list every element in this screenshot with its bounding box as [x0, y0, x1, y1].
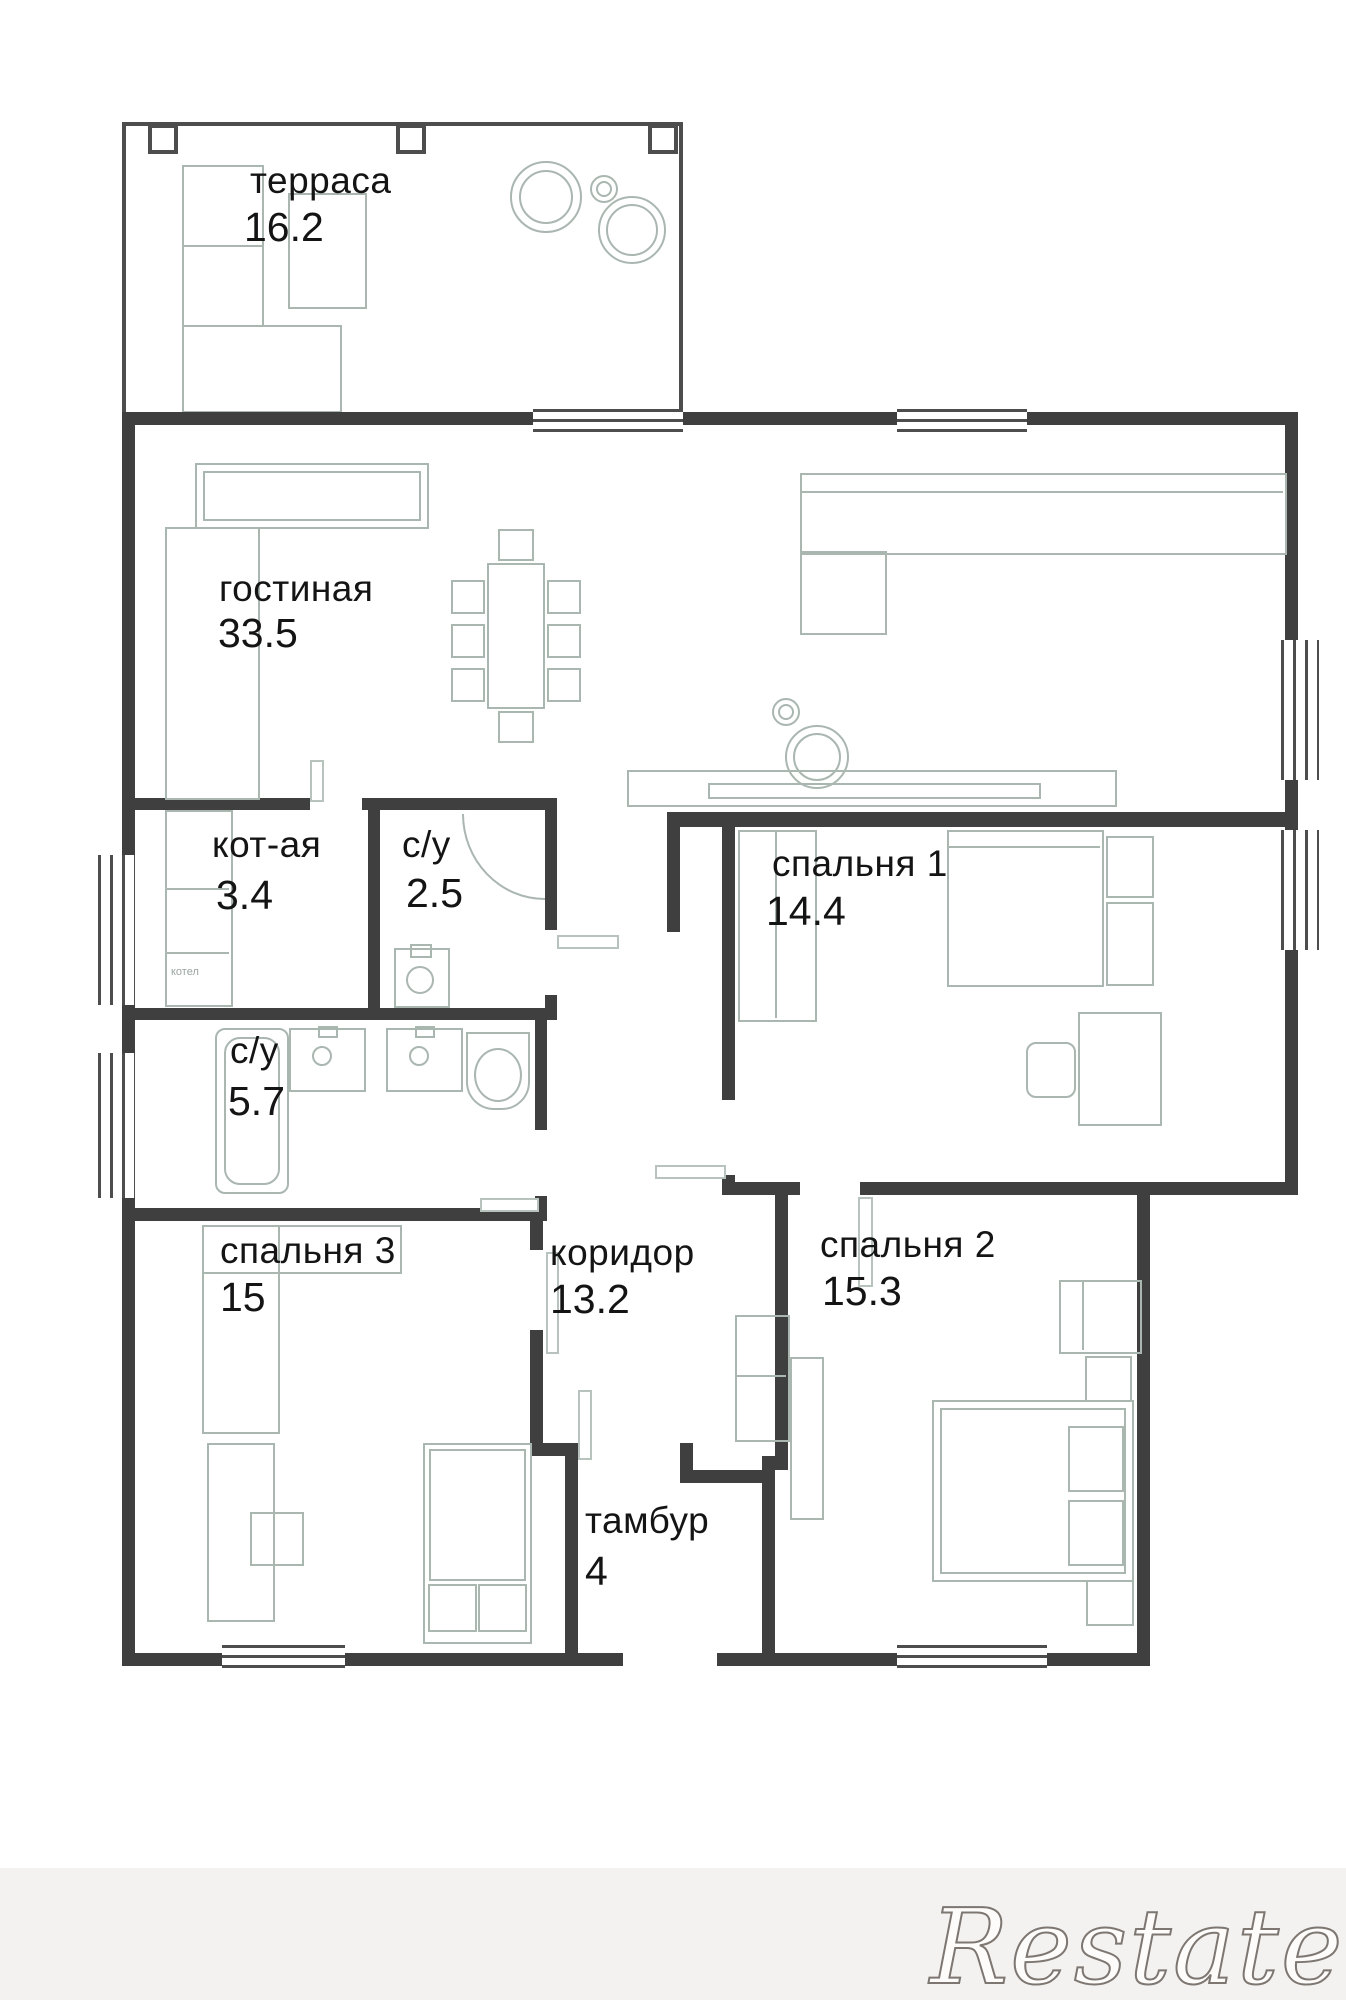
wall: [762, 1456, 788, 1470]
bed: [947, 830, 1104, 987]
pillow: [478, 1584, 527, 1632]
faucet-icon: [318, 1026, 338, 1038]
door-leaf: [578, 1390, 592, 1460]
wall: [122, 412, 1298, 425]
room-area-bedroom2: 15.3: [822, 1268, 902, 1315]
wardrobe: [1059, 1280, 1142, 1354]
plant-pot-icon: [778, 704, 794, 720]
room-label-vestibule: тамбур: [585, 1500, 709, 1542]
wall: [545, 798, 557, 930]
wall: [722, 812, 735, 1100]
dining-chair: [498, 711, 534, 743]
room-area-bedroom1: 14.4: [766, 888, 846, 935]
wardrobe: [1082, 1280, 1084, 1350]
terrace-furniture: [182, 325, 342, 413]
side-table: [250, 1512, 304, 1566]
dining-chair: [451, 668, 485, 702]
window: [897, 409, 1027, 439]
dresser: [790, 1357, 824, 1520]
dining-chair: [451, 580, 485, 614]
plant-pot-icon: [596, 181, 612, 197]
dining-chair: [451, 624, 485, 658]
terrace-post: [148, 124, 178, 154]
room-label-bedroom3: спальня 3: [220, 1230, 396, 1272]
wall: [122, 122, 126, 412]
room-label-bedroom1: спальня 1: [772, 843, 948, 885]
room-label-bedroom2: спальня 2: [820, 1224, 996, 1266]
room-area-living: 33.5: [218, 610, 298, 657]
corner-sofa: [800, 473, 1287, 555]
door-leaf: [480, 1198, 539, 1212]
terrace-post: [648, 124, 678, 154]
dining-chair: [547, 624, 581, 658]
wall: [680, 1443, 693, 1483]
terrace-furniture: [182, 245, 264, 327]
wall: [762, 1470, 775, 1666]
plant-pot-icon: [519, 170, 573, 224]
wall: [135, 1008, 547, 1020]
wall: [667, 812, 1298, 827]
room-area-wc-small: 2.5: [406, 870, 463, 917]
dining-chair: [547, 580, 581, 614]
room-label-wc-small: с/у: [402, 824, 451, 866]
boiler-unit-label: котел: [171, 966, 199, 978]
room-label-terrace: терраса: [250, 160, 391, 202]
kitchen-counter: [203, 471, 421, 521]
wall: [860, 1182, 1150, 1195]
wall: [578, 1653, 623, 1666]
watermark-logo: Restate: [930, 1886, 1344, 2000]
wall: [717, 1653, 762, 1666]
wall: [1137, 1182, 1150, 1666]
wall: [530, 1330, 543, 1456]
window: [1281, 830, 1319, 950]
room-label-wc-big: с/у: [230, 1030, 279, 1072]
room-area-vestibule: 4: [585, 1548, 608, 1595]
window: [1281, 640, 1319, 780]
room-label-boiler: кот-ая: [212, 824, 321, 866]
pillow: [428, 1584, 477, 1632]
boiler-shelf: [165, 952, 229, 954]
room-area-boiler: 3.4: [216, 872, 273, 919]
wall: [122, 1653, 578, 1666]
wall: [530, 1221, 543, 1250]
tv: [708, 783, 1041, 799]
nightstand: [1106, 902, 1154, 986]
corner-sofa: [800, 551, 887, 635]
room-area-wc-big: 5.7: [228, 1078, 285, 1125]
room-area-bedroom3: 15: [220, 1274, 266, 1321]
door-leaf: [557, 935, 619, 949]
wall: [122, 412, 135, 1666]
desk: [1078, 1012, 1162, 1126]
dining-chair: [498, 529, 534, 561]
wall: [368, 798, 380, 1020]
wall: [362, 798, 557, 810]
terrace-post: [396, 124, 426, 154]
wall: [679, 122, 683, 412]
window: [222, 1645, 345, 1675]
window: [533, 409, 683, 439]
window: [98, 1053, 135, 1198]
sink: [409, 1046, 429, 1066]
faucet-icon: [410, 944, 432, 958]
pillow: [1068, 1426, 1124, 1492]
room-label-living: гостиная: [219, 568, 373, 610]
room-area-terrace: 16.2: [244, 204, 324, 251]
dining-chair: [547, 668, 581, 702]
floor-plan: терраса 16.2: [0, 0, 1346, 2000]
shower: [462, 814, 545, 900]
pillow: [1068, 1500, 1124, 1566]
nightstand: [1106, 836, 1154, 898]
nightstand: [1085, 1356, 1132, 1402]
door-leaf: [310, 760, 324, 802]
room-area-hall: 13.2: [550, 1276, 630, 1323]
room-label-hall: коридор: [550, 1232, 695, 1274]
wall: [565, 1456, 578, 1666]
wall: [722, 1182, 800, 1195]
corner-sofa: [800, 491, 1283, 493]
chair: [1026, 1042, 1076, 1098]
window: [98, 855, 135, 1005]
washbasin: [406, 966, 434, 994]
window: [897, 1645, 1047, 1675]
wall: [680, 1470, 775, 1483]
wall: [535, 1020, 547, 1130]
door-leaf: [655, 1165, 726, 1179]
dining-table: [487, 563, 545, 709]
sink: [312, 1046, 332, 1066]
hall-closet: [735, 1315, 790, 1442]
wall: [1137, 1182, 1298, 1195]
faucet-icon: [415, 1026, 435, 1038]
bed: [947, 846, 1100, 848]
plant-pot-icon: [606, 204, 658, 256]
bed: [429, 1449, 526, 1581]
toilet: [474, 1048, 522, 1102]
hall-closet: [735, 1375, 786, 1377]
wall: [667, 812, 680, 932]
nightstand: [1086, 1580, 1134, 1626]
